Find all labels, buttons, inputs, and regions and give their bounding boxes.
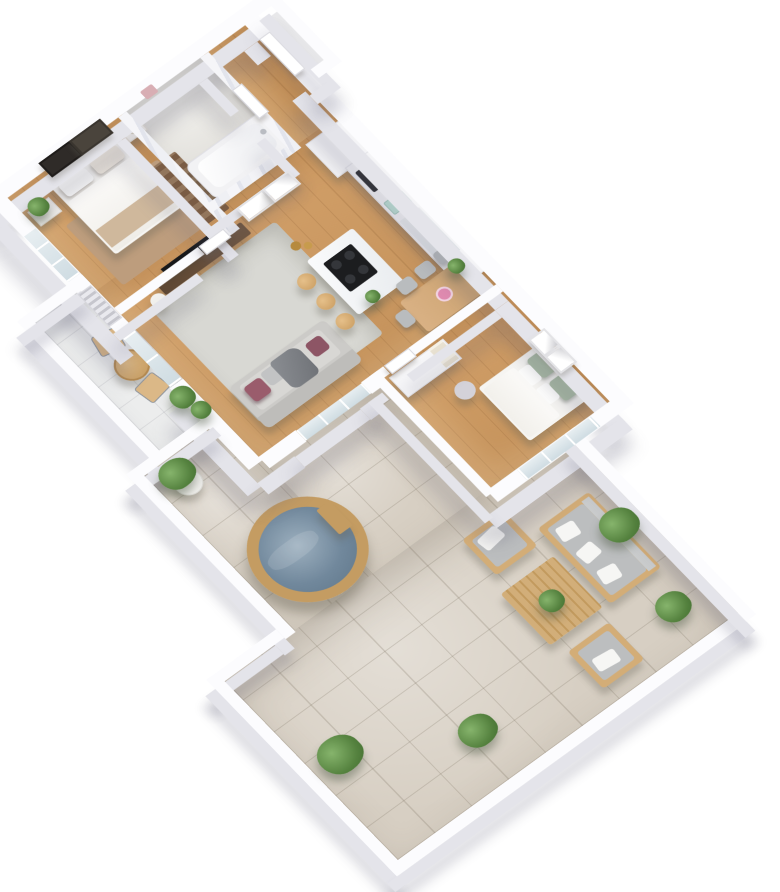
floorplan-stage <box>0 0 780 867</box>
